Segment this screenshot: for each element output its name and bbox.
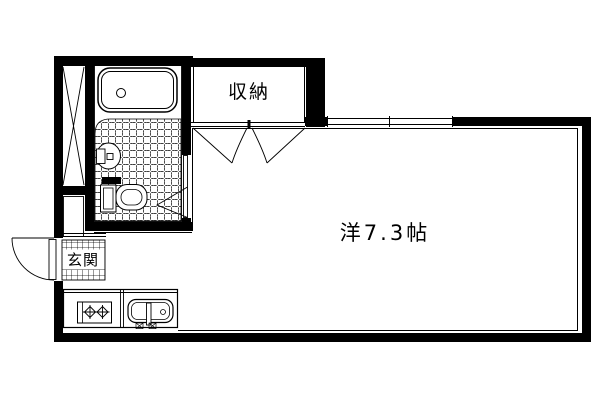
entrance-swing-door bbox=[12, 238, 56, 280]
wall bbox=[54, 186, 94, 195]
wall bbox=[54, 56, 193, 66]
bathtub bbox=[98, 68, 177, 112]
wall bbox=[582, 117, 591, 342]
closet-double-doors bbox=[193, 128, 305, 163]
wall bbox=[54, 56, 63, 238]
wall bbox=[54, 333, 591, 342]
closet: 収納 bbox=[191, 81, 305, 163]
wall bbox=[306, 58, 325, 127]
wall bbox=[54, 281, 63, 342]
wall bbox=[85, 56, 94, 231]
wall bbox=[85, 222, 193, 231]
closet-label: 収納 bbox=[228, 81, 270, 103]
pipe-space-shaft bbox=[63, 67, 84, 185]
wall bbox=[182, 56, 191, 155]
entry-hall-pocket bbox=[64, 197, 84, 237]
wall bbox=[182, 58, 325, 67]
floor-plan-page: 収納 洋7.3帖 玄関 bbox=[0, 0, 600, 400]
kitchen bbox=[64, 290, 178, 329]
wall bbox=[305, 117, 327, 126]
western-room: 洋7.3帖 bbox=[340, 221, 430, 245]
entrance: 玄関 bbox=[12, 234, 106, 281]
entrance-label: 玄関 bbox=[67, 251, 99, 269]
faucet-icon bbox=[147, 303, 152, 325]
bathroom bbox=[95, 66, 188, 222]
sliding-window bbox=[327, 116, 453, 127]
wall bbox=[453, 117, 591, 126]
floor-plan: 収納 洋7.3帖 玄関 bbox=[0, 0, 600, 400]
western-room-label: 洋7.3帖 bbox=[340, 221, 430, 245]
wash-basin bbox=[97, 143, 121, 169]
